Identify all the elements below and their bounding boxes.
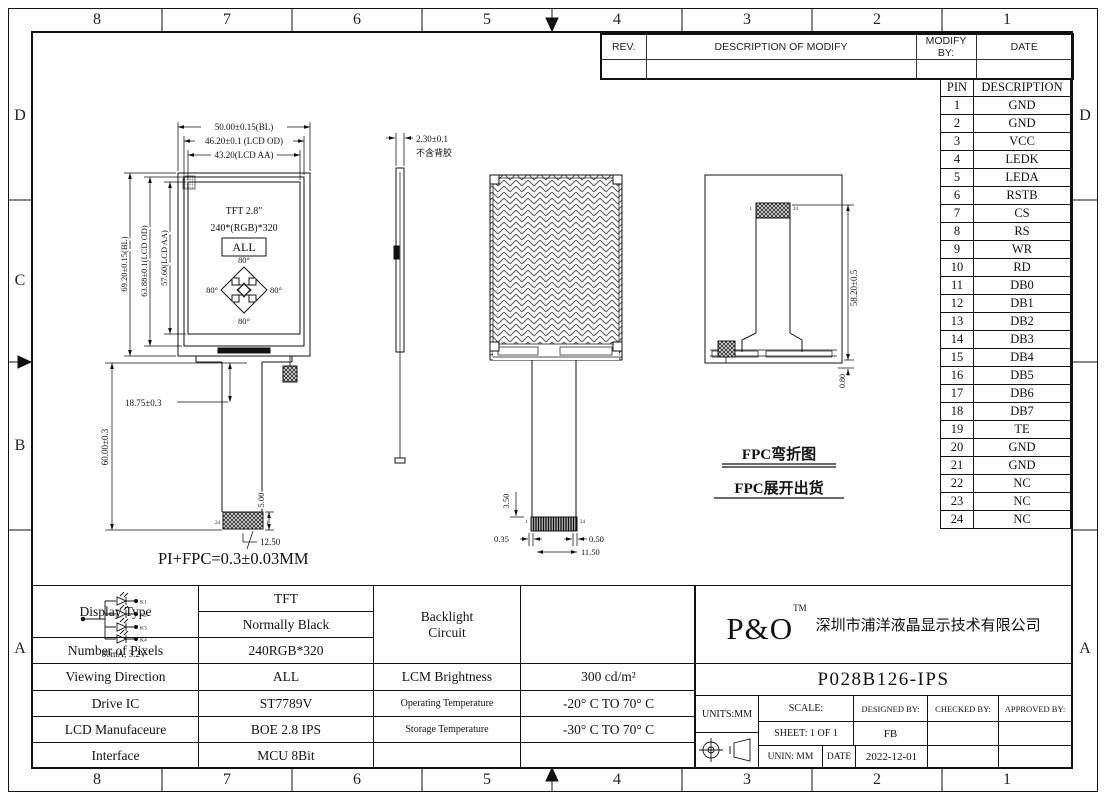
grid-col-label-top: 7 [223, 11, 231, 29]
grid-col-label-bottom: 4 [613, 771, 621, 789]
grid-row-label-left: D [14, 107, 26, 125]
approved-by-value [999, 722, 1071, 746]
rev-description-header: DESCRIPTION OF MODIFY [646, 34, 916, 60]
pin-row: 8RS [941, 223, 1071, 241]
empty-cell [374, 743, 521, 768]
grid-col-label-top: 2 [873, 11, 881, 29]
checked-by-value [928, 722, 999, 746]
storage-temp-label: Storage Temperature [374, 717, 521, 743]
engineering-drawing-sheet: 50.00±0.15(BL) 46.20±0.1 (LCD OD) 43.20(… [0, 0, 1106, 800]
pin-row: 23NC [941, 493, 1071, 511]
approved-by-label: APPROVED BY: [999, 696, 1071, 722]
grid-col-label-top: 3 [743, 11, 751, 29]
backlight-circuit-diagram: K1 K2 K3 K4 80mA, 3.2V [521, 586, 696, 664]
designed-by-label: DESIGNED BY: [854, 696, 928, 722]
grid-col-label-top: 5 [483, 11, 491, 29]
pin-row: 4LEDK [941, 151, 1071, 169]
pin-row: 12DB1 [941, 295, 1071, 313]
empty-cell [999, 746, 1071, 767]
pin-row: 5LEDA [941, 169, 1071, 187]
company-cell: P&OTM 深圳市浦洋液晶显示技术有限公司 [696, 586, 1071, 664]
title-block: P&OTM 深圳市浦洋液晶显示技术有限公司 P028B126-IPS UNITS… [695, 585, 1072, 768]
grid-col-label-bottom: 6 [353, 771, 361, 789]
brightness-value: 300 cd/m² [521, 664, 696, 691]
grid-col-label-top: 1 [1003, 11, 1011, 29]
grid-row-label-right: D [1079, 107, 1091, 125]
rev-date-header: DATE [976, 34, 1073, 60]
part-number: P028B126-IPS [696, 664, 1071, 696]
pin-row: 3VCC [941, 133, 1071, 151]
pin-row: 1GND [941, 97, 1071, 115]
grid-col-label-bottom: 2 [873, 771, 881, 789]
pin-row: 6RSTB [941, 187, 1071, 205]
pin-row: 13DB2 [941, 313, 1071, 331]
company-logo: P&OTM [726, 603, 806, 647]
grid-row-label-right: A [1079, 640, 1091, 658]
storage-temp-value: -30° C TO 70° C [521, 717, 696, 743]
pin-table-header: PIN DESCRIPTION [941, 79, 1071, 97]
pin-row: 14DB3 [941, 331, 1071, 349]
pin-row: 18DB7 [941, 403, 1071, 421]
grid-row-label-left: A [14, 640, 26, 658]
grid-col-label-bottom: 3 [743, 771, 751, 789]
grid-col-label-top: 6 [353, 11, 361, 29]
manufacturer-label: LCD Manufaceure [33, 717, 199, 743]
trademark-symbol: TM [793, 603, 807, 613]
grid-col-label-bottom: 5 [483, 771, 491, 789]
grid-col-label-bottom: 7 [223, 771, 231, 789]
checked-by-label: CHECKED BY: [928, 696, 999, 722]
grid-col-label-bottom: 1 [1003, 771, 1011, 789]
pin-row: 20GND [941, 439, 1071, 457]
pin-row: 22NC [941, 475, 1071, 493]
grid-col-label-top: 4 [613, 11, 621, 29]
empty-cell [928, 746, 999, 767]
operating-temp-value: -20° C TO 70° C [521, 691, 696, 717]
sheet-cell: SHEET: 1 OF 1 [759, 722, 854, 746]
backlight-circuit-label: Backlight Circuit [374, 586, 521, 664]
scale-label: SCALE: [759, 696, 854, 722]
spec-table: Display Type TFT Backlight Circuit K1 K2… [32, 585, 695, 768]
drive-ic-value: ST7789V [199, 691, 374, 717]
pin-table-body: PIN DESCRIPTION 1GND2GND3VCC4LEDK5LEDA6R… [941, 79, 1071, 529]
company-name: 深圳市浦洋液晶显示技术有限公司 [816, 614, 1041, 635]
projection-angle-icon [696, 733, 758, 767]
grid-col-label-top: 8 [93, 11, 101, 29]
pin-row: 17DB6 [941, 385, 1071, 403]
manufacturer-value: BOE 2.8 IPS [199, 717, 374, 743]
designer-value: FB [854, 722, 928, 746]
rev-header: REV. [601, 34, 646, 60]
grid-row-label-left: B [15, 437, 26, 455]
display-type-value2: Normally Black [199, 612, 374, 638]
pin-row: 9WR [941, 241, 1071, 259]
pixels-value: 240RGB*320 [199, 638, 374, 664]
pin-row: 24NC [941, 511, 1071, 529]
brightness-label: LCM Brightness [374, 664, 521, 691]
date-label: DATE [823, 746, 856, 767]
revision-empty-row [601, 60, 1073, 80]
date-value: 2022-12-01 [856, 746, 928, 767]
grid-row-label-left: C [15, 272, 26, 290]
units-cell: UNITS:MM [696, 696, 759, 733]
pin-row: 11DB0 [941, 277, 1071, 295]
interface-label: Interface [33, 743, 199, 768]
pin-row: 7CS [941, 205, 1071, 223]
viewing-direction-value: ALL [199, 664, 374, 691]
pin-description-table: PIN DESCRIPTION 1GND2GND3VCC4LEDK5LEDA6R… [940, 78, 1071, 529]
empty-cell [521, 743, 696, 768]
projection-symbol-cell [696, 733, 759, 767]
pin-row: 10RD [941, 259, 1071, 277]
unin-cell: UNIN: MM [759, 746, 823, 767]
drive-ic-label: Drive IC [33, 691, 199, 717]
pin-row: 16DB5 [941, 367, 1071, 385]
display-type-value1: TFT [199, 586, 374, 612]
pin-row: 2GND [941, 115, 1071, 133]
revision-table: REV. DESCRIPTION OF MODIFY MODIFY BY: DA… [600, 33, 1074, 80]
rev-modifyby-header: MODIFY BY: [916, 34, 976, 60]
grid-col-label-bottom: 8 [93, 771, 101, 789]
pin-row: 19TE [941, 421, 1071, 439]
pin-row: 15DB4 [941, 349, 1071, 367]
interface-value: MCU 8Bit [199, 743, 374, 768]
viewing-direction-label: Viewing Direction [33, 664, 199, 691]
pin-row: 21GND [941, 457, 1071, 475]
operating-temp-label: Operating Temperature [374, 691, 521, 717]
